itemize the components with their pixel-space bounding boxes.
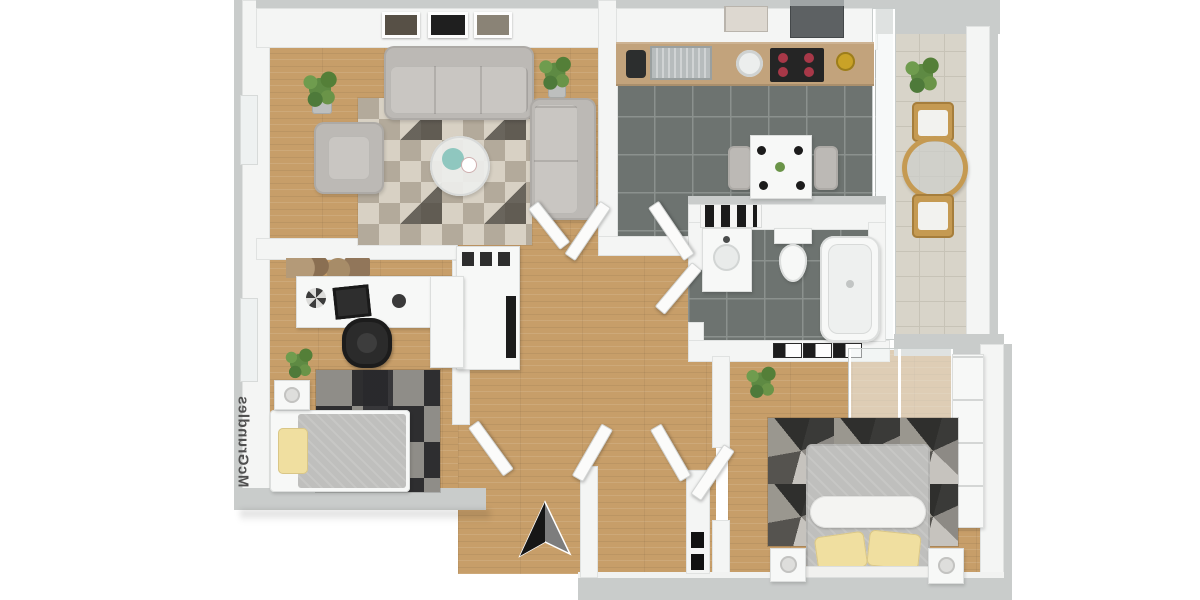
- kitchen-faucet: [626, 50, 646, 78]
- watermark-text: McGrundles: [235, 395, 252, 487]
- plate: [759, 181, 768, 190]
- office-nightstand: [274, 380, 310, 410]
- sofa-chaise: [530, 98, 596, 220]
- intercom-panel-bottom: [691, 554, 704, 570]
- plate: [796, 181, 805, 190]
- balcony-plant: [898, 50, 946, 102]
- coffee-table-tray: [462, 158, 476, 172]
- desk-return: [430, 276, 464, 368]
- coffee-table-cloth: [442, 148, 464, 170]
- sink-basin: [713, 244, 740, 271]
- bathtub-drain: [846, 280, 854, 288]
- single-bed-pillow: [278, 428, 308, 474]
- balcony-table: [902, 136, 968, 200]
- glass-closet: [848, 348, 954, 422]
- nightstand-right: [928, 548, 964, 584]
- burner: [778, 67, 788, 77]
- table-plant: [775, 162, 785, 172]
- toilet-tank: [774, 228, 812, 244]
- sideboard-mirror: [506, 296, 516, 358]
- sink-tap: [723, 236, 730, 243]
- vanity-sink: [702, 228, 752, 292]
- gold-decor: [836, 52, 855, 71]
- wall-balcony-right-outer: [966, 26, 998, 344]
- burner: [804, 53, 814, 63]
- desk-lamp: [392, 294, 406, 308]
- watermark: McGrundles: [230, 376, 256, 506]
- dining-chair-right: [814, 146, 838, 190]
- dining-table: [750, 135, 812, 199]
- desk-globe: [306, 288, 326, 308]
- burner: [804, 67, 814, 77]
- north-arrow-icon: [516, 500, 572, 560]
- lamp: [780, 556, 797, 573]
- towel-plaque-1: [774, 344, 801, 357]
- bed-roll-pillow: [810, 496, 926, 528]
- north-arrow: [516, 500, 572, 560]
- wall-shadow: [240, 510, 490, 522]
- picture-frame-2: [428, 12, 468, 38]
- balcony-chair-bottom: [912, 194, 954, 238]
- bed-pillow-right: [866, 529, 921, 570]
- plate: [757, 146, 766, 155]
- bed-headboard: [804, 566, 932, 578]
- single-bed-blanket: [298, 414, 406, 488]
- coffee-machine: [790, 0, 844, 38]
- office-wall-art: [286, 258, 370, 278]
- lamp: [284, 387, 300, 403]
- towel-plaque-2: [804, 344, 831, 357]
- laptop: [332, 284, 371, 320]
- bathtub: [820, 236, 880, 342]
- intercom-panel-top: [691, 532, 704, 548]
- burner: [778, 53, 788, 63]
- living-plant-left: [296, 64, 344, 116]
- wall-bedroom-right-outer: [980, 344, 1012, 600]
- office-chair: [342, 318, 392, 368]
- wall-entry-left: [580, 466, 598, 578]
- sofa-three-seat: [384, 46, 534, 120]
- window-living: [240, 95, 258, 165]
- armchair: [314, 122, 384, 194]
- nightstand-left: [770, 548, 806, 582]
- cooktop: [770, 48, 824, 82]
- wall-bedroom-left-a: [712, 356, 730, 448]
- bedroom-plant: [740, 360, 782, 406]
- bathroom-radiator: [700, 204, 762, 228]
- wall-bedroom-left-b: [712, 520, 730, 576]
- picture-frame-1: [382, 12, 420, 38]
- living-plant-right: [532, 50, 578, 98]
- window-office: [240, 298, 258, 382]
- dining-chair-left: [728, 146, 752, 190]
- bathtub-basin: [828, 244, 872, 334]
- picture-frame-3: [474, 12, 512, 38]
- kitchen-sink: [650, 46, 712, 80]
- sideboard-vent-slots: [462, 252, 512, 266]
- cutting-boards: [724, 6, 768, 32]
- plate: [794, 146, 803, 155]
- round-bowl: [736, 50, 763, 77]
- lamp: [938, 557, 955, 574]
- floor-plan-canvas: McGrundles: [0, 0, 1200, 600]
